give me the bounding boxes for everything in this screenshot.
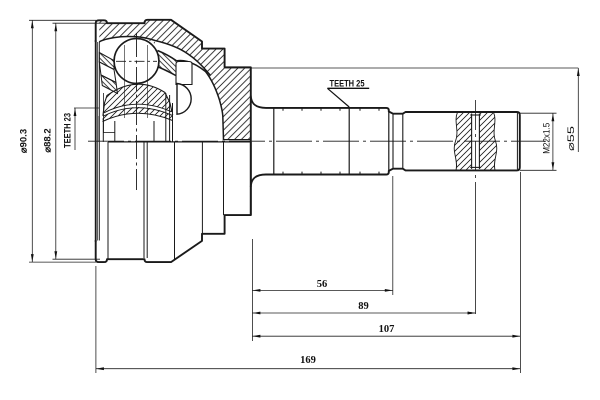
svg-text:169: 169	[300, 355, 316, 366]
svg-text:⌀90.3: ⌀90.3	[19, 129, 30, 153]
svg-text:56: 56	[317, 279, 328, 290]
svg-text:TEETH 23: TEETH 23	[62, 113, 72, 148]
svg-text:107: 107	[379, 324, 395, 335]
svg-text:⌀88.2: ⌀88.2	[43, 128, 54, 152]
svg-text:M22x1.5: M22x1.5	[541, 123, 551, 154]
svg-text:89: 89	[358, 301, 369, 312]
svg-text:⌀55: ⌀55	[566, 126, 577, 151]
